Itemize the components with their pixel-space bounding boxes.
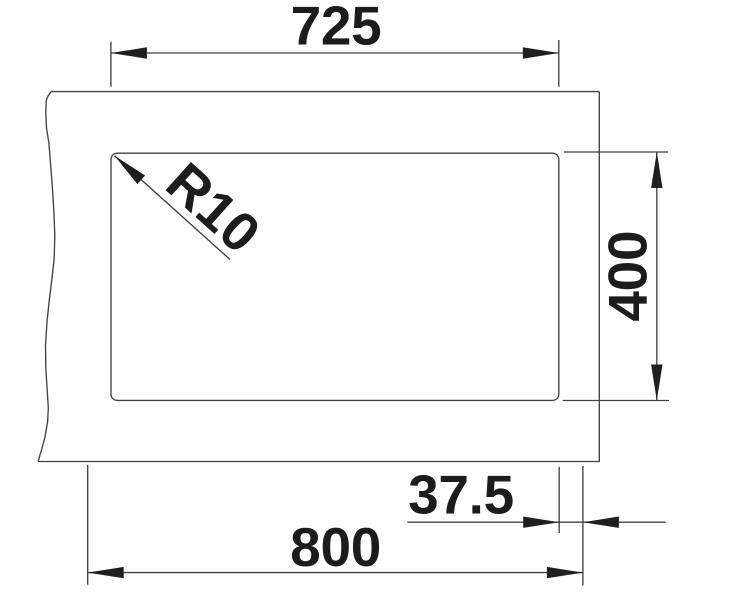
svg-text:R10: R10 bbox=[155, 150, 273, 265]
svg-text:800: 800 bbox=[290, 516, 381, 578]
svg-text:37.5: 37.5 bbox=[408, 464, 514, 526]
svg-text:400: 400 bbox=[597, 231, 659, 322]
svg-text:725: 725 bbox=[291, 0, 382, 57]
